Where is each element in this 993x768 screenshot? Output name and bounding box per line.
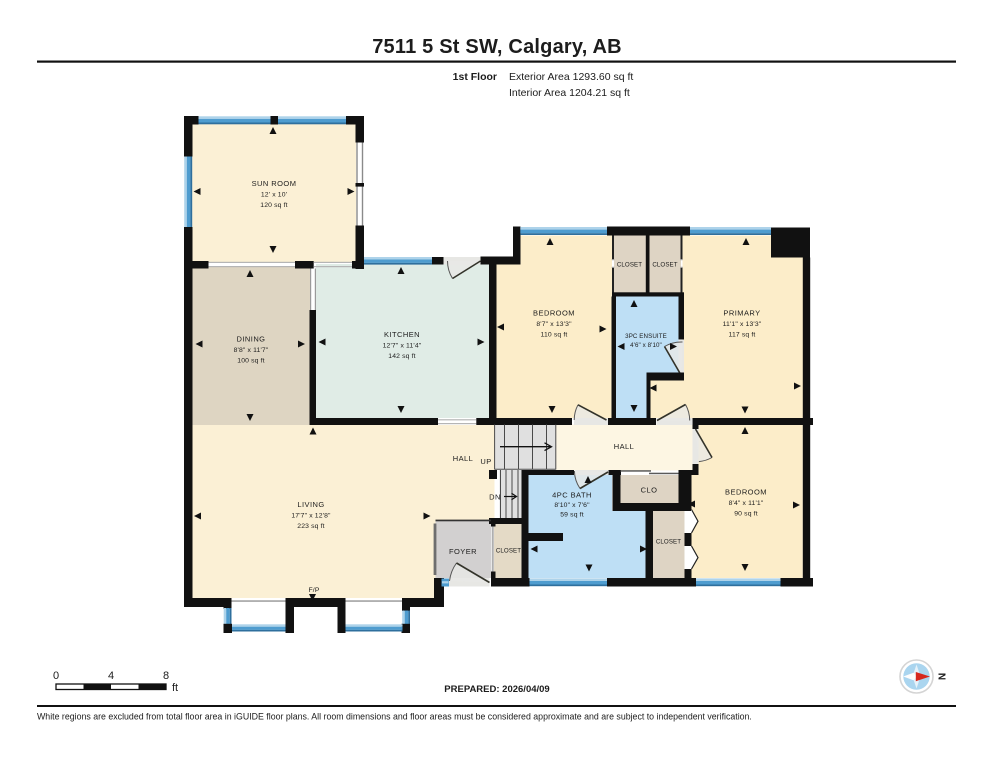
svg-text:BEDROOM: BEDROOM [533,309,575,318]
svg-text:FOYER: FOYER [449,547,477,556]
svg-text:ft: ft [172,682,178,694]
svg-text:8: 8 [163,670,169,682]
svg-text:120 sq ft: 120 sq ft [260,202,287,209]
svg-text:DINING: DINING [237,335,266,344]
svg-text:12'7" x 11'4": 12'7" x 11'4" [383,343,422,350]
svg-text:CLO: CLO [641,486,658,495]
svg-text:SUN ROOM: SUN ROOM [252,179,297,188]
svg-text:4PC BATH: 4PC BATH [552,491,592,500]
svg-text:7511 5 St SW, Calgary, AB: 7511 5 St SW, Calgary, AB [372,36,622,58]
svg-text:HALL: HALL [614,442,635,451]
svg-text:8'7" x 13'3": 8'7" x 13'3" [536,321,572,328]
svg-text:8'10" x 7'6": 8'10" x 7'6" [554,502,590,509]
svg-text:UP: UP [480,457,491,466]
svg-text:CLOSET: CLOSET [656,539,681,546]
svg-text:0: 0 [53,670,59,682]
svg-text:17'7" x 12'8": 17'7" x 12'8" [291,513,331,520]
svg-text:F/P: F/P [308,587,319,594]
svg-text:1st Floor: 1st Floor [453,71,497,83]
svg-text:90 sq ft: 90 sq ft [734,511,758,518]
svg-text:CLOSET: CLOSET [496,548,521,555]
svg-text:110 sq ft: 110 sq ft [541,332,568,339]
svg-text:KITCHEN: KITCHEN [384,330,420,339]
svg-text:CLOSET: CLOSET [617,262,642,269]
svg-text:8'4" x 11'1": 8'4" x 11'1" [729,500,764,507]
svg-text:PREPARED: 2026/04/09: PREPARED: 2026/04/09 [444,684,549,695]
svg-text:DN: DN [489,493,501,502]
svg-text:117 sq ft: 117 sq ft [729,332,756,339]
svg-text:Exterior Area 1293.60 sq ft: Exterior Area 1293.60 sq ft [509,71,633,83]
svg-text:PRIMARY: PRIMARY [723,309,760,318]
svg-text:12' x 10': 12' x 10' [261,192,287,199]
svg-text:CLOSET: CLOSET [652,262,677,269]
svg-text:142 sq ft: 142 sq ft [388,353,415,360]
svg-text:100 sq ft: 100 sq ft [237,358,264,365]
svg-text:11'1" x 13'3": 11'1" x 13'3" [723,321,762,328]
svg-text:White regions are excluded fro: White regions are excluded from total fl… [37,712,752,722]
svg-text:HALL: HALL [453,454,474,463]
svg-text:223 sq ft: 223 sq ft [297,523,324,530]
svg-text:4: 4 [108,670,114,682]
svg-text:59 sq ft: 59 sq ft [560,512,584,519]
svg-text:8'8" x 11'7": 8'8" x 11'7" [234,347,269,354]
svg-text:N: N [935,673,946,680]
svg-text:Interior Area 1204.21 sq ft: Interior Area 1204.21 sq ft [509,87,630,99]
svg-text:3PC ENSUITE: 3PC ENSUITE [625,333,667,340]
svg-text:4'6" x 8'10": 4'6" x 8'10" [630,342,662,349]
svg-text:LIVING: LIVING [297,500,324,509]
svg-text:BEDROOM: BEDROOM [725,488,767,497]
